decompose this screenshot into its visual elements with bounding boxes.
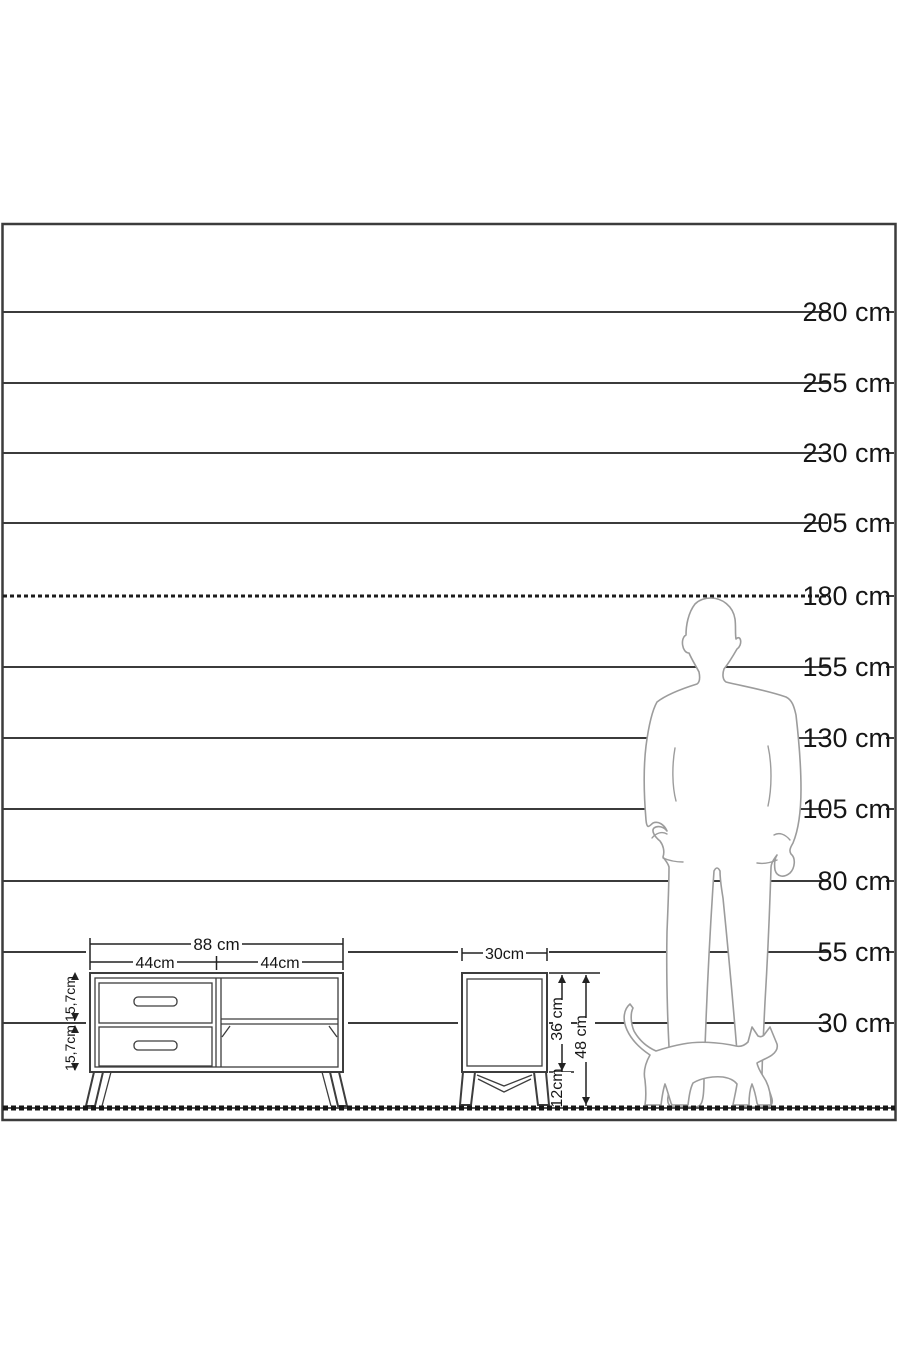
scale-label-30: 30 cm	[817, 1008, 891, 1038]
nightstand-body-height-label: 36 cm	[549, 997, 566, 1041]
tv-stand-left-section-label: 44cm	[135, 955, 174, 972]
scale-label-205: 205 cm	[802, 508, 891, 538]
tv-stand: 88 cm 44cm 44cm 15,7cm 15,7cm	[62, 935, 348, 1106]
nightstand-arrow-36-top	[558, 975, 566, 983]
nightstand-arrow-48-top	[582, 975, 590, 983]
diagram-canvas: 280 cm 255 cm 230 cm 205 cm 180 cm 155 c…	[0, 0, 900, 1350]
scale-label-130: 130 cm	[802, 723, 891, 753]
nightstand-body	[462, 973, 547, 1072]
nightstand-leg-height-label: 12cm	[549, 1068, 566, 1107]
man-outline	[644, 598, 801, 1107]
nightstand: 30cm 36 cm 12cm 48 cm	[458, 946, 600, 1108]
tv-stand-right-section-label: 44cm	[260, 955, 299, 972]
tv-stand-width-label: 88 cm	[193, 935, 239, 954]
scale-label-105: 105 cm	[802, 794, 891, 824]
scale-label-155: 155 cm	[802, 652, 891, 682]
size-scale-diagram: 280 cm 255 cm 230 cm 205 cm 180 cm 155 c…	[0, 0, 900, 1350]
nightstand-arrow-48-bottom	[582, 1097, 590, 1105]
scale-label-55: 55 cm	[817, 937, 891, 967]
man-silhouette	[644, 598, 801, 1107]
tv-stand-top-drawer-height-label: 15,7cm	[62, 976, 78, 1022]
tv-stand-bottom-drawer-height-label: 15,7cm	[62, 1025, 78, 1071]
scale-label-230: 230 cm	[802, 438, 891, 468]
scale-label-80: 80 cm	[817, 866, 891, 896]
nightstand-total-height-label: 48 cm	[573, 1015, 590, 1059]
scale-label-180: 180 cm	[802, 581, 891, 611]
scale-label-280: 280 cm	[802, 297, 891, 327]
nightstand-width-label: 30cm	[485, 946, 524, 963]
scale-label-255: 255 cm	[802, 368, 891, 398]
